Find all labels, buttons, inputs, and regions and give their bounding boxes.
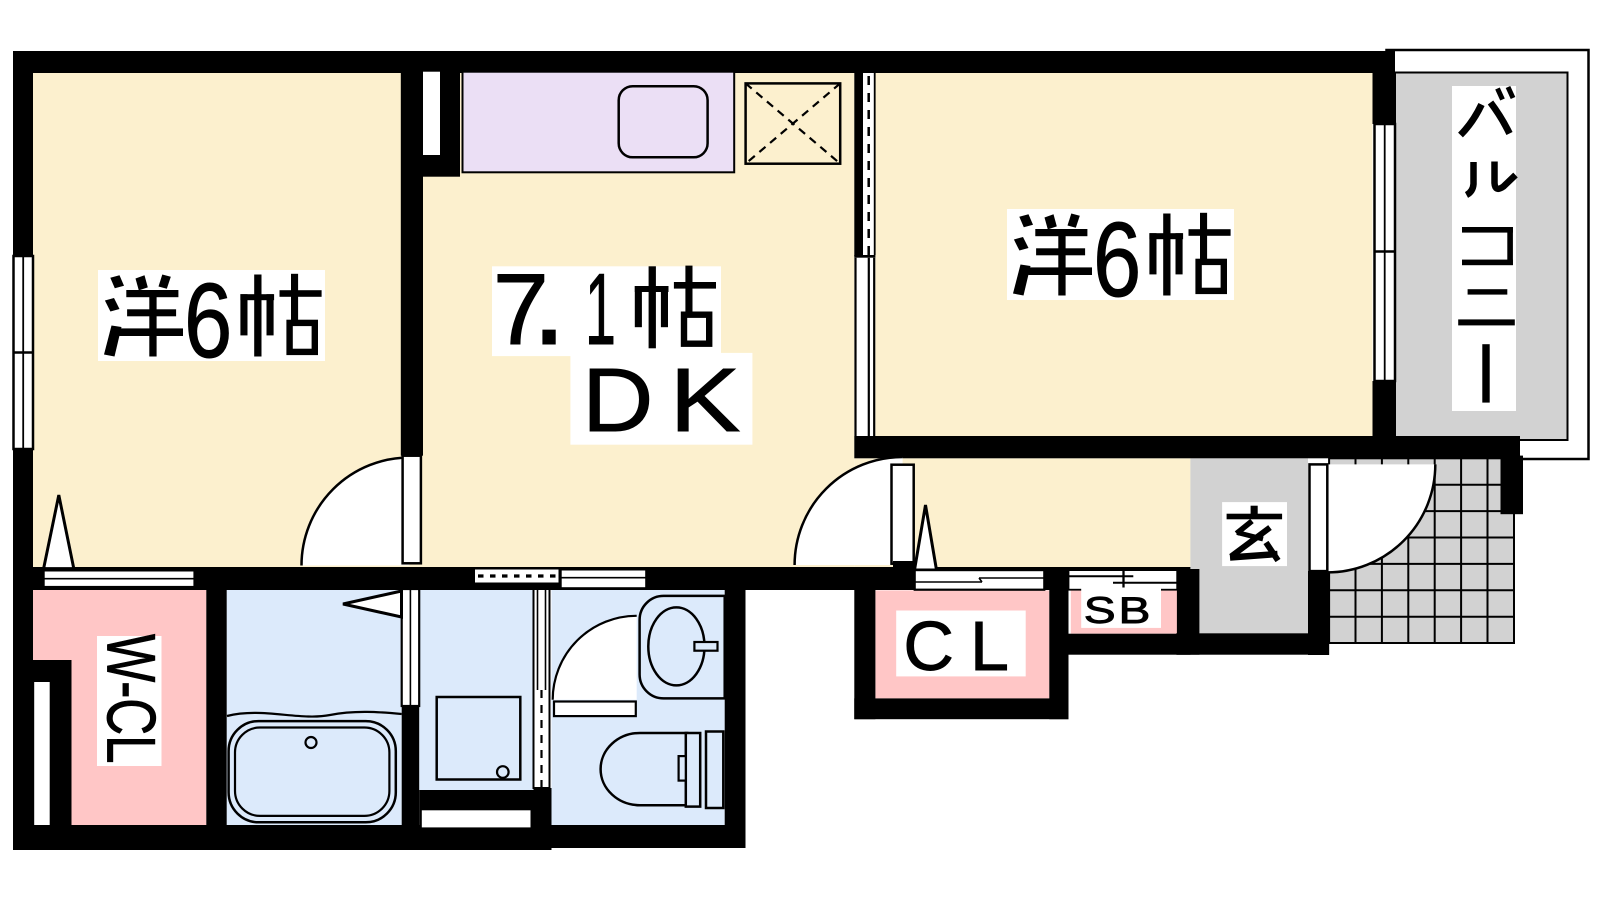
svg-text:6: 6 [184,261,232,380]
svg-text:.: . [531,226,567,372]
svg-text:K: K [670,350,741,451]
svg-text:6: 6 [1093,200,1141,319]
svg-text:L: L [970,607,1009,685]
svg-text:S: S [1084,590,1116,631]
svg-text:B: B [1119,590,1151,631]
svg-text:C: C [903,607,954,685]
svg-text:D: D [582,350,654,451]
svg-text:W-CL: W-CL [93,634,170,764]
